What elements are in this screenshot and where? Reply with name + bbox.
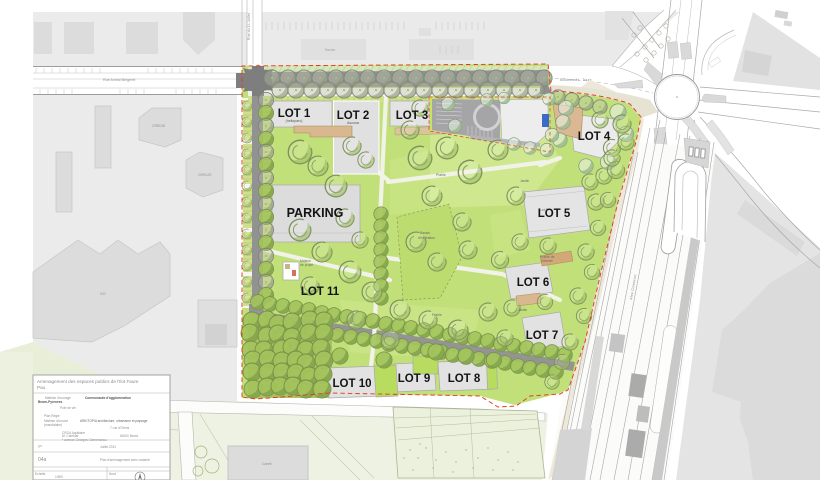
svg-text:Prairie: Prairie (436, 173, 446, 177)
svg-text:64000 Beost: 64000 Beost (120, 434, 138, 438)
svg-text:* avenue Georges Clemenceau: * avenue Georges Clemenceau (62, 438, 107, 442)
svg-text:PARKING: PARKING (287, 206, 344, 220)
svg-text:04a: 04a (38, 457, 47, 463)
svg-text:LOT 9: LOT 9 (398, 373, 431, 385)
svg-text:d'infiltration: d'infiltration (418, 236, 435, 240)
svg-text:LOT 11: LOT 11 (301, 286, 340, 298)
svg-text:Ascona: Ascona (347, 121, 359, 125)
svg-text:Echelle: Echelle (35, 472, 46, 476)
svg-text:Juillet 2021: Juillet 2021 (100, 445, 116, 449)
svg-text:Jardin: Jardin (518, 308, 527, 312)
svg-text:Bearn-Pyrenees: Bearn-Pyrenees (38, 400, 63, 404)
svg-text:LOT 3: LOT 3 (396, 110, 429, 122)
svg-text:(helioparc): (helioparc) (286, 119, 303, 123)
svg-text:Jardin: Jardin (520, 179, 529, 183)
svg-text:Rue Amiral Bergeret: Rue Amiral Bergeret (103, 78, 135, 82)
svg-text:Plan Regie: Plan Regie (44, 414, 60, 418)
svg-text:Communaute d'agglomeration: Communaute d'agglomeration (85, 396, 131, 400)
svg-text:CREDIS: CREDIS (152, 124, 166, 128)
svg-text:GO: GO (100, 292, 106, 296)
svg-text:Pole de vie: Pole de vie (60, 406, 76, 410)
svg-text:Careil: Careil (262, 462, 272, 466)
svg-text:7 rue d'Orens: 7 rue d'Orens (110, 426, 130, 430)
svg-text:1/500: 1/500 (55, 475, 63, 479)
svg-text:Rue du 14 Juillet: Rue du 14 Juillet (247, 13, 251, 40)
svg-text:LOT 10: LOT 10 (333, 378, 372, 390)
svg-text:Nord: Nord (109, 472, 116, 476)
svg-text:LOT 8: LOT 8 (448, 373, 481, 385)
svg-text:Detente: Detente (541, 259, 553, 263)
svg-text:LOT 4: LOT 4 (578, 131, 611, 143)
svg-text:LOT 6: LOT 6 (517, 277, 550, 289)
svg-text:CIRCUS: CIRCUS (198, 173, 212, 177)
svg-text:Boulevard L. Tours: Boulevard L. Tours (560, 78, 592, 82)
svg-text:--: -- (38, 445, 40, 449)
svg-text:Plan d'amenagement avec var: Plan d'amenagement avec variante (100, 458, 150, 462)
svg-text:Bassin: Bassin (420, 231, 430, 235)
svg-text:LOT 7: LOT 7 (526, 330, 559, 342)
svg-text:ARKITOPIA architecture, urban: ARKITOPIA architecture, urbanisme et pay… (80, 419, 148, 423)
svg-text:Naurim: Naurim (325, 48, 336, 52)
svg-text:Pau: Pau (37, 385, 46, 390)
svg-text:Amenagement des espaces pub: Amenagement des espaces publics de l'Ilo… (37, 379, 139, 384)
svg-text:Prairie: Prairie (432, 313, 442, 317)
svg-text:Lot 5: Lot 5 (540, 208, 548, 212)
svg-text:de projet: de projet (300, 263, 313, 267)
svg-text:(mandataire): (mandataire) (44, 423, 62, 427)
